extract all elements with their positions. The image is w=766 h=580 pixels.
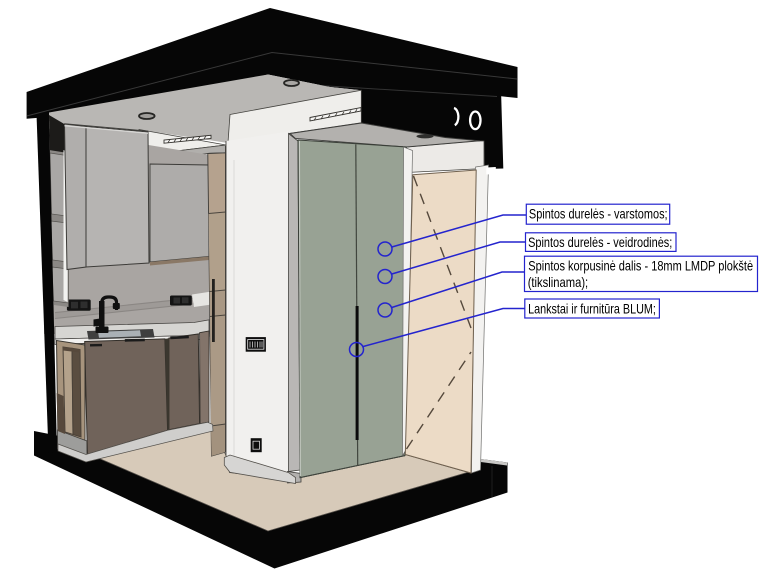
svg-text:(tikslinama);: (tikslinama); <box>528 275 589 290</box>
svg-text:Spintos korpusinė dalis - 18mm: Spintos korpusinė dalis - 18mm LMDP plok… <box>528 259 753 274</box>
svg-text:Spintos durelės - varstomos;: Spintos durelės - varstomos; <box>529 207 668 222</box>
svg-text:Spintos durelės - veidrodinės;: Spintos durelės - veidrodinės; <box>528 235 672 250</box>
svg-text:Lankstai ir furnitūra BLUM;: Lankstai ir furnitūra BLUM; <box>528 302 656 317</box>
